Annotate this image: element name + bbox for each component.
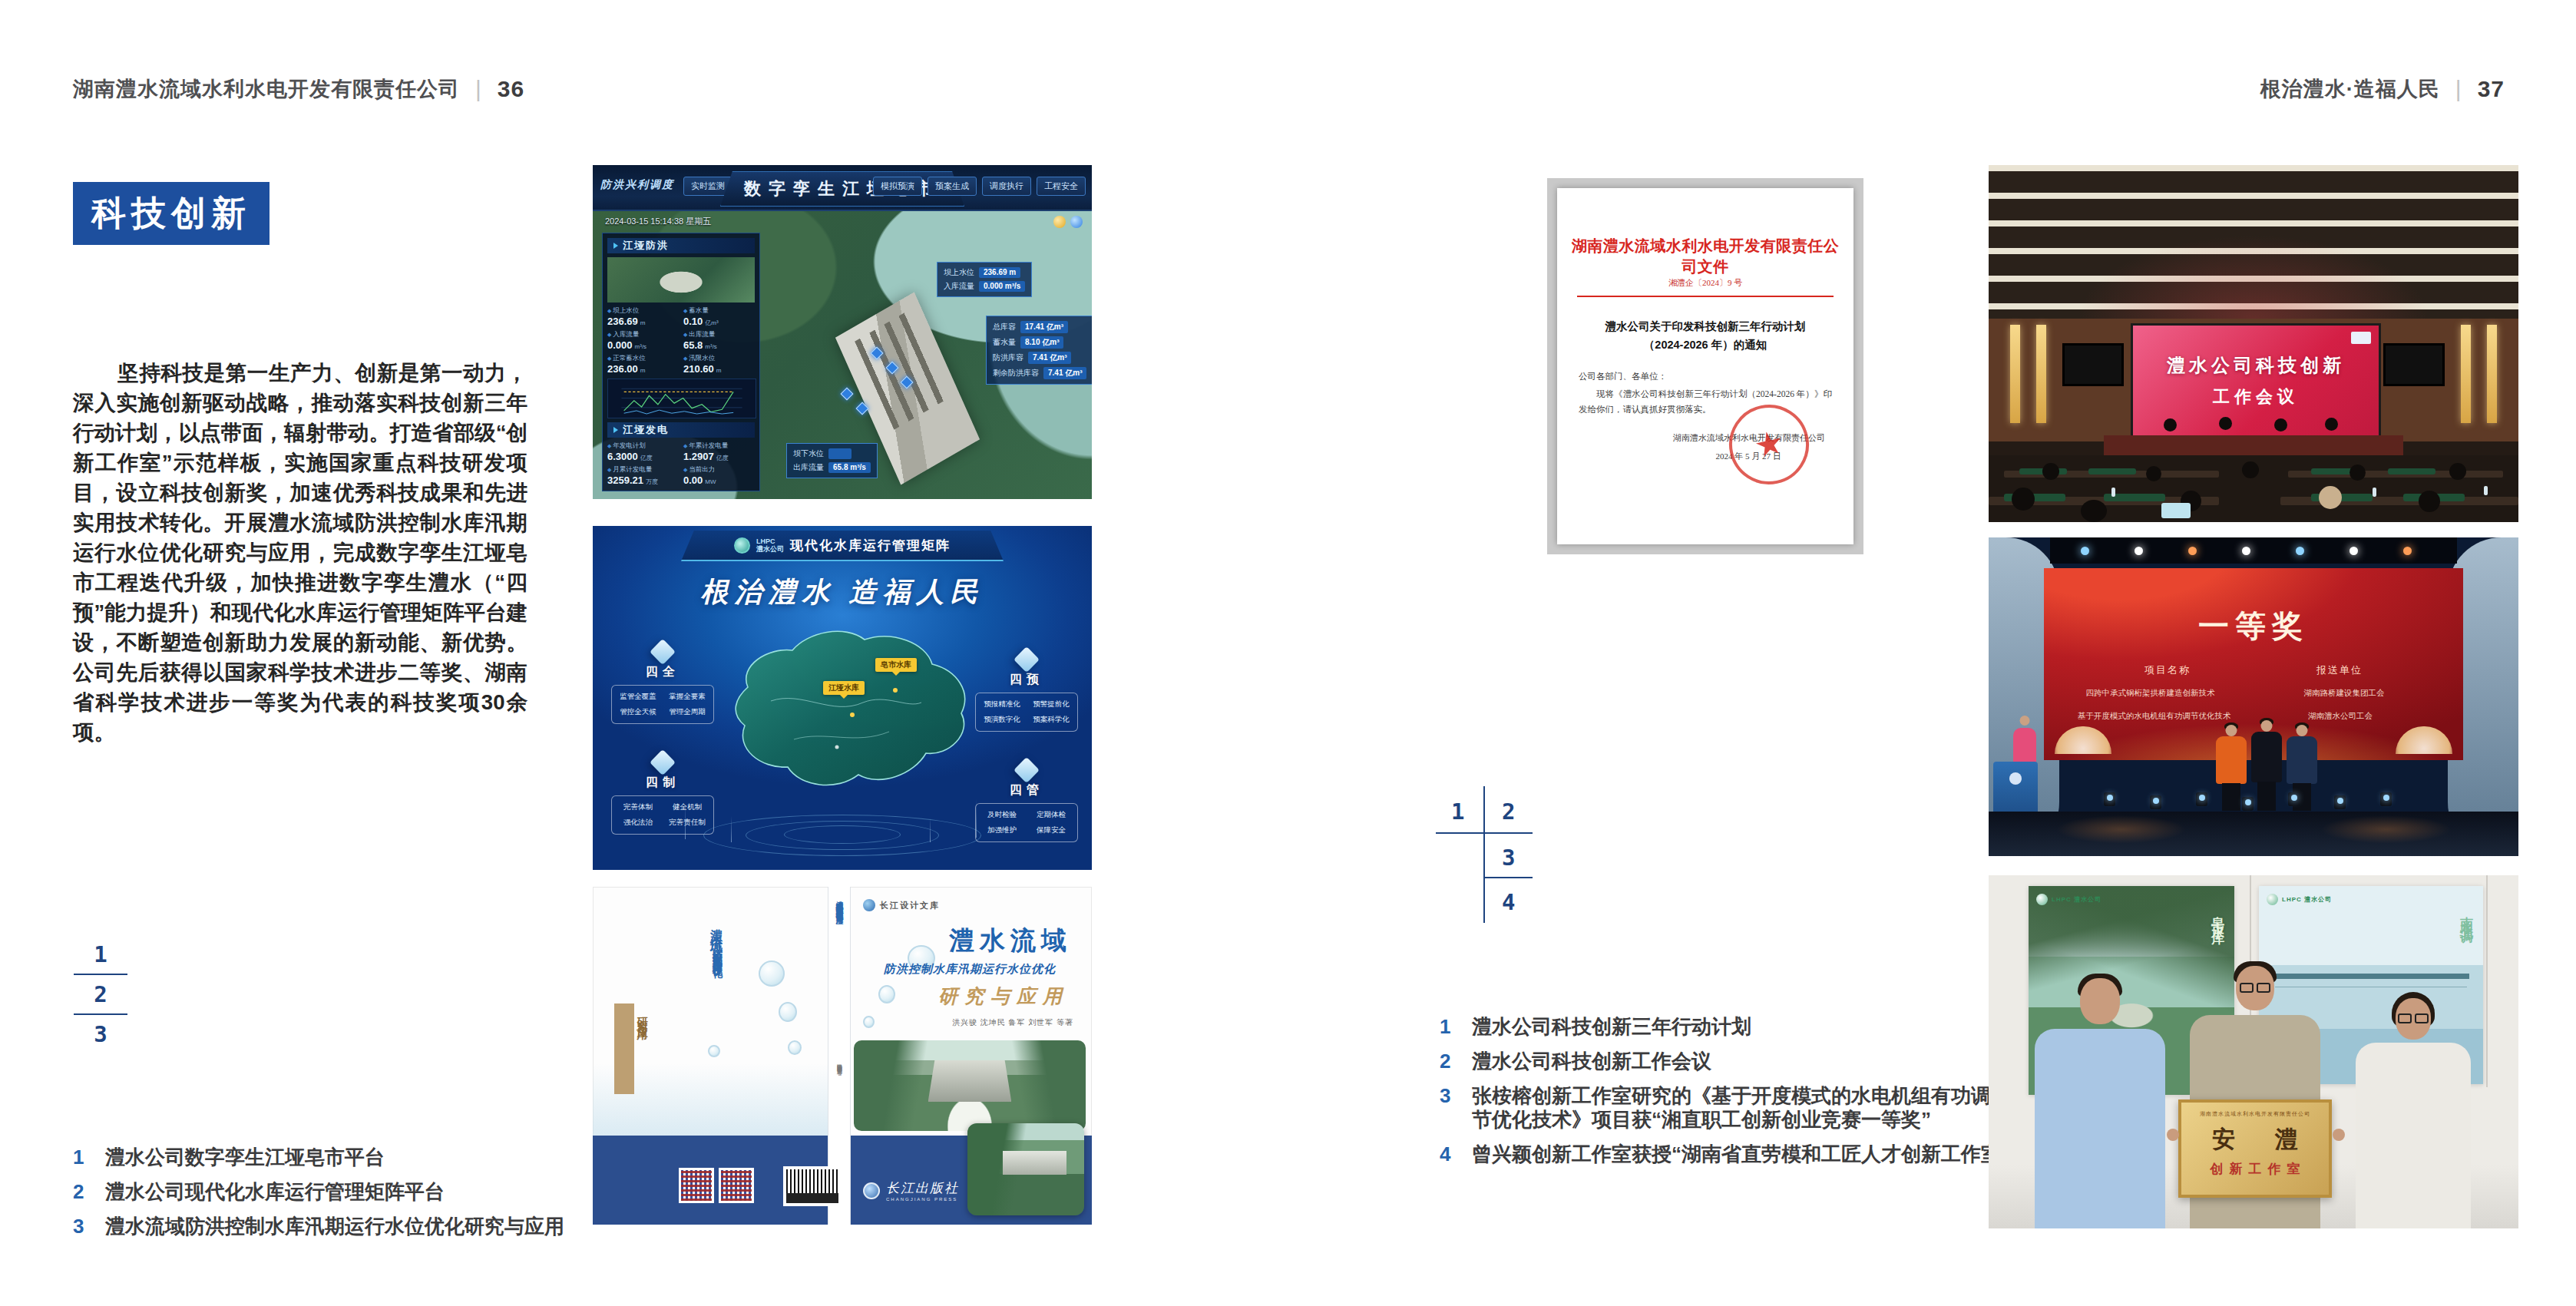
barcode-footer xyxy=(786,1193,838,1203)
figure-number: 1 xyxy=(1451,798,1464,825)
caption-text: 澧水公司数字孪生江垭皂市平台 xyxy=(105,1146,385,1169)
stage-truss xyxy=(2050,537,2457,564)
publisher-names: 长江出版社 CHANGJIANG PRESS xyxy=(886,1179,959,1202)
panel-title: 江垭防洪 xyxy=(623,239,669,253)
unit: 亿度 xyxy=(716,455,729,461)
value: 6.3000 xyxy=(607,451,638,462)
audience-member xyxy=(2242,461,2259,478)
caption-number: 3 xyxy=(73,1215,90,1238)
audience-member xyxy=(2081,500,2107,522)
poster-logo-text: LHPC 澧水公司 xyxy=(2052,895,2101,904)
stat-value: 236.00m xyxy=(607,363,679,375)
cube-icon xyxy=(650,749,676,775)
front-cover-dam-photo xyxy=(854,1040,1086,1131)
audience-member xyxy=(2419,491,2440,512)
amber-light-bar xyxy=(2487,325,2497,423)
wall-display xyxy=(2062,343,2124,386)
callout-value: 7.41 亿m³ xyxy=(1043,367,1086,379)
front-title-sub: 防洪控制水库汛期运行水位优化 xyxy=(854,962,1086,977)
alert-icon xyxy=(1053,216,1066,228)
water-drop-decoration xyxy=(788,1040,802,1055)
front-title-tail: 研究与应用 xyxy=(938,984,1069,1009)
light-beam-decoration xyxy=(976,799,977,838)
caption-item: 1 澧水公司科技创新三年行动计划 xyxy=(1440,1015,2012,1039)
value: 0.00 xyxy=(683,474,703,486)
screen-title-line1: 澧水公司科技创新 xyxy=(2133,353,2379,378)
woman-white-top xyxy=(2356,992,2471,1228)
panelist xyxy=(2219,417,2232,430)
panel-item: 完善体制 xyxy=(615,802,661,812)
panel-item: 预警提前化 xyxy=(1028,699,1074,709)
stat-value: 236.69m xyxy=(607,316,679,327)
water-drop-decoration xyxy=(863,1016,875,1028)
series-globe-icon xyxy=(863,899,875,911)
value: 0.10 xyxy=(683,316,703,327)
spine-publisher: 长江出版社 xyxy=(835,1213,844,1217)
panel-item: 强化法治 xyxy=(615,818,661,828)
plaque-header: 湖南澧水流域水利水电开发有限责任公司 xyxy=(2181,1110,2329,1118)
document-letterhead: 湖南澧水流域水利水电开发有限责任公司文件 xyxy=(1568,236,1843,277)
stat-value: 3259.21万度 xyxy=(607,474,679,486)
audience-member xyxy=(2449,463,2466,480)
stage-light-fixture xyxy=(2288,792,2300,806)
panel-title-bar: 江垭防洪 xyxy=(607,238,755,253)
caption-item: 4 曾兴颖创新工作室获授“湖南省直劳模和工匠人才创新工作室” xyxy=(1440,1142,2012,1166)
panel-item: 管理全周期 xyxy=(664,707,710,717)
stat-cell: 入库流量 0.000m³/s xyxy=(607,330,679,351)
value: 65.8 xyxy=(683,339,703,351)
index-divider xyxy=(1483,786,1485,923)
matrix-panel-siguan: 四管 及时检验 定期体检 加强维护 保障安全 xyxy=(975,761,1078,842)
panel-items: 及时检验 定期体检 加强维护 保障安全 xyxy=(975,803,1078,842)
stat-cell: 坝上水位 236.69m xyxy=(607,306,679,327)
matrix-panel-siyu: 四预 预报精准化 预警提前化 预演数字化 预案科学化 xyxy=(975,650,1078,732)
value: 0.000 xyxy=(607,339,633,351)
publisher-icon xyxy=(863,1182,880,1199)
official-document-photo: 湖南澧水流域水利水电开发有限责任公司文件 湘澧企〔2024〕9 号 澧水公司关于… xyxy=(1547,178,1863,554)
navy-jacket xyxy=(2287,736,2317,784)
caption-text: 张桉榕创新工作室研究的《基于开度模式的水电机组有功调节优化技术》项目获“湘直职工… xyxy=(1472,1084,2009,1132)
caption-number: 2 xyxy=(73,1180,90,1204)
left-data-panel: 江垭防洪 坝上水位 236.69m 蓄水量 0.10亿m³ 入库流量 0.000… xyxy=(602,233,760,491)
series-logo: 长江设计文库 xyxy=(863,899,940,911)
spotlight xyxy=(2403,547,2412,555)
legs xyxy=(2222,783,2240,811)
figure-number: 3 xyxy=(74,1021,127,1047)
stat-label: 汛限水位 xyxy=(683,354,755,363)
unit: 亿m³ xyxy=(705,319,718,326)
callout-value: 0.000 m³/s xyxy=(979,281,1025,292)
title-line1: 澧水公司关于印发科技创新三年行动计划 xyxy=(1572,317,1838,336)
water-drop-decoration xyxy=(779,1002,797,1022)
man-blue-polo xyxy=(2035,974,2165,1228)
nav-tab: 调度执行 xyxy=(982,177,1031,196)
stage-light-fixture xyxy=(2150,795,2161,809)
left-page-number: 36 xyxy=(498,76,524,102)
lhpc-logo-text: LHPC 澧水公司 xyxy=(756,537,784,553)
panel-item: 完善责任制 xyxy=(664,818,710,828)
callout-row: 防洪库容 7.41 亿m³ xyxy=(993,352,1086,364)
value: 1.2907 xyxy=(683,451,714,462)
blue-polo-shirt xyxy=(2035,1029,2165,1228)
publisher-logo: 长江出版社 CHANGJIANG PRESS xyxy=(863,1179,959,1202)
matrix-panel-siquan: 四全 监管全覆盖 掌握全要素 管控全天候 管理全周期 xyxy=(611,643,714,724)
callout-value: 8.10 亿m³ xyxy=(1020,336,1063,349)
callout-value: 236.69 m xyxy=(979,267,1020,278)
stat-cell: 正常蓄水位 236.00m xyxy=(607,354,679,375)
spine-title: 澧水流域防洪控制水库汛期运行水位优化研究与应用 xyxy=(835,894,845,912)
project-name: 四跨中承式钢桁架拱桥建造创新技术 xyxy=(2086,688,2215,699)
desk-mat xyxy=(2088,468,2136,474)
stage-light-fixture xyxy=(2196,792,2207,806)
matrix-title: 现代化水库运行管理矩阵 xyxy=(790,537,951,554)
white-top xyxy=(2356,1043,2471,1228)
plaque-title: 安 澧 xyxy=(2181,1124,2329,1156)
lhpc-logo-icon xyxy=(734,537,750,554)
wall-seam xyxy=(2486,875,2488,1087)
generation-stats-grid: 年发电计划 6.3000亿度 年累计发电量 1.2907亿度 月累计发电量 32… xyxy=(607,441,755,486)
value: 236.00 xyxy=(607,363,638,375)
figure-number: 2 xyxy=(74,981,127,1007)
document-number: 湘澧企〔2024〕9 号 xyxy=(1557,277,1853,289)
amber-light-bar xyxy=(2036,325,2046,423)
legs xyxy=(2257,782,2276,811)
stat-value: 0.10亿m³ xyxy=(683,316,755,327)
matrix-topbar: LHPC 澧水公司 现代化水库运行管理矩阵 xyxy=(681,531,1004,561)
tissue-box xyxy=(2161,503,2191,518)
matrix-panel-sizhi: 四制 完善体制 健全机制 强化法治 完善责任制 xyxy=(611,753,714,835)
callout-row: 剩余防洪库容 7.41 亿m³ xyxy=(993,367,1086,379)
back-title-sub: 防洪控制水库汛期运行水位优化 xyxy=(708,941,724,962)
seal-star-icon xyxy=(1754,429,1784,460)
water-bottle xyxy=(2484,486,2488,495)
panel-item: 预演数字化 xyxy=(979,715,1025,725)
glasses-icon xyxy=(2240,983,2270,993)
panel-title-bar: 江垭发电 xyxy=(607,422,755,438)
water-drop-decoration xyxy=(759,960,785,987)
spine-authors: 洪兴骏 沈坤民 鲁军 刘世军 等著 xyxy=(835,1060,843,1066)
unit: MW xyxy=(705,478,716,485)
panel-title: 江垭发电 xyxy=(623,423,669,437)
isbn-barcode xyxy=(783,1166,842,1206)
stat-cell: 出库流量 65.8m³/s xyxy=(683,330,755,351)
stage-dome-decoration xyxy=(2055,726,2111,754)
callout-label: 蓄水量 xyxy=(993,337,1016,348)
head xyxy=(2297,725,2308,736)
org-name: 湖南澧水公司工会 xyxy=(2308,711,2373,722)
stat-cell: 年发电计划 6.3000亿度 xyxy=(607,441,679,462)
header-separator: | xyxy=(475,76,482,102)
callout-row: 出库流量 65.8 m³/s xyxy=(793,462,871,473)
publisher-name: 长江出版社 xyxy=(886,1179,959,1197)
value: 236.69 xyxy=(607,316,638,327)
nav-tab: 预案生成 xyxy=(928,177,977,196)
caption-text: 澧水公司科技创新工作会议 xyxy=(1472,1050,1711,1073)
spotlight xyxy=(2081,547,2089,555)
audience-member xyxy=(2146,466,2161,481)
callout-label: 剩余防洪库容 xyxy=(993,368,1039,379)
caption-item: 2 澧水公司现代化水库运行管理矩阵平台 xyxy=(73,1180,564,1204)
matrix-slogan: 根治澧水 造福人民 xyxy=(593,574,1092,611)
back-cover-title: 澧水流域 防洪控制水库汛期运行水位优化 xyxy=(708,919,724,1096)
series-name: 长江设计文库 xyxy=(880,900,940,911)
project-name: 基于开度模式的水电机组有功调节优化技术 xyxy=(2078,711,2231,722)
nav-right-group: 模拟预演 预案生成 调度执行 工程安全 xyxy=(873,177,1086,196)
amber-light-bar xyxy=(2010,325,2020,423)
water-drop-decoration xyxy=(708,1045,720,1057)
front-cover-powerstation-photo xyxy=(967,1123,1084,1215)
panel-item: 预报精准化 xyxy=(979,699,1025,709)
callout-label: 入库流量 xyxy=(944,281,974,292)
reservoir-label: 江垭水库 xyxy=(823,681,865,695)
audience-member xyxy=(2012,488,2035,511)
document-body: 现将《澧水公司科技创新三年行动计划（2024-2026 年）》印发给你们，请认真… xyxy=(1579,386,1832,417)
stage-dome-decoration xyxy=(2396,726,2452,754)
dark-suit xyxy=(2251,732,2282,782)
water-bottle xyxy=(2373,488,2376,497)
body-paragraph: 坚持科技是第一生产力、创新是第一动力，深入实施创新驱动战略，推动落实科技创新三年… xyxy=(73,358,527,747)
unit: m xyxy=(716,367,722,374)
stat-value: 0.000m³/s xyxy=(607,339,679,351)
poster-logo-text: LHPC 澧水公司 xyxy=(2282,895,2332,904)
panel-item: 管控全天候 xyxy=(615,707,661,717)
dashboard-brand: 防洪兴利调度 xyxy=(600,178,674,192)
slogan-text: 根治澧水·造福人民 xyxy=(2260,75,2440,103)
lhpc-logo-icon xyxy=(2267,894,2278,905)
head xyxy=(2226,725,2237,736)
panel-items: 预报精准化 预警提前化 预演数字化 预案科学化 xyxy=(975,693,1078,732)
document-salutation: 公司各部门、各单位： xyxy=(1579,371,1667,382)
downstream-callout: 坝下水位 出库流量 65.8 m³/s xyxy=(786,443,878,478)
stat-label: 月累计发电量 xyxy=(607,465,679,474)
cube-icon xyxy=(650,639,676,665)
title-line2: （2024-2026 年）的通知 xyxy=(1572,336,1838,354)
column-header: 项目名称 xyxy=(2144,663,2191,677)
section-title-badge: 科技创新 xyxy=(73,182,270,245)
unit: m xyxy=(640,319,646,326)
dashboard-corner-icons xyxy=(1053,216,1083,228)
callout-row: 总库容 17.41 亿m³ xyxy=(993,321,1086,333)
caption-item: 1 澧水公司数字孪生江垭皂市平台 xyxy=(73,1146,564,1169)
qr-code xyxy=(679,1168,714,1203)
caption-text: 澧水流域防洪控制水库汛期运行水位优化研究与应用 xyxy=(105,1215,564,1238)
panel-item: 掌握全要素 xyxy=(664,692,710,702)
audience-member xyxy=(2042,463,2059,480)
screen-logo xyxy=(2351,332,2371,344)
plaque-subtitle: 创新工作室 xyxy=(2181,1160,2329,1178)
callout-label: 总库容 xyxy=(993,322,1016,332)
panel-item: 监管全覆盖 xyxy=(615,692,661,702)
sail-icon xyxy=(613,427,618,433)
panelist xyxy=(2274,418,2287,431)
left-captions: 1 澧水公司数字孪生江垭皂市平台 2 澧水公司现代化水库运行管理矩阵平台 3 澧… xyxy=(73,1146,564,1238)
panel-title: 四预 xyxy=(975,672,1078,688)
publisher-name-en: CHANGJIANG PRESS xyxy=(886,1197,959,1202)
spotlight xyxy=(2135,547,2143,555)
orange-jacket xyxy=(2216,736,2247,784)
right-captions: 1 澧水公司科技创新三年行动计划 2 澧水公司科技创新工作会议 3 张桉榕创新工… xyxy=(1440,1015,2012,1166)
callout-label: 坝下水位 xyxy=(793,448,824,459)
nav-tab: 工程安全 xyxy=(1037,177,1086,196)
callout-row: 坝上水位 236.69 m xyxy=(944,267,1025,278)
face xyxy=(2080,978,2120,1024)
upstream-callout: 坝上水位 236.69 m 入库流量 0.000 m³/s xyxy=(937,262,1032,297)
stat-label: 年累计发电量 xyxy=(683,441,755,451)
caption-text: 曾兴颖创新工作室获授“湖南省直劳模和工匠人才创新工作室” xyxy=(1472,1142,2011,1166)
audience-member xyxy=(2349,465,2366,481)
host-head xyxy=(2020,716,2030,726)
stat-cell: 当前出力 0.00MW xyxy=(683,465,755,486)
capacity-callout: 总库容 17.41 亿m³ 蓄水量 8.10 亿m³ 防洪库容 7.41 亿m³… xyxy=(986,316,1092,385)
back-title-tail: 研究与应用 xyxy=(636,1008,650,1023)
value: 210.60 xyxy=(683,363,714,375)
org-name: 湖南路桥建设集团工会 xyxy=(2304,688,2385,699)
flood-stats-grid: 坝上水位 236.69m 蓄水量 0.10亿m³ 入库流量 0.000m³/s … xyxy=(607,306,755,375)
caption-text: 澧水公司现代化水库运行管理矩阵平台 xyxy=(105,1180,445,1204)
panelist xyxy=(2164,418,2177,431)
callout-row: 蓄水量 8.10 亿m³ xyxy=(993,336,1086,349)
panel-items: 监管全覆盖 掌握全要素 管控全天候 管理全周期 xyxy=(611,685,714,724)
workshop-group-photo: LHPC 澧水公司 皂市水库 LHPC 澧水公司 南水北调 xyxy=(1989,875,2518,1228)
head-table xyxy=(2104,435,2403,455)
screen-title-line2: 工作会议 xyxy=(2133,385,2379,408)
stage-light-fixture xyxy=(2380,792,2392,806)
unit: m³/s xyxy=(635,343,647,350)
index-divider xyxy=(74,1013,127,1015)
tan-block xyxy=(614,1003,634,1094)
right-page-header: 根治澧水·造福人民 | 37 xyxy=(2260,75,2505,103)
cube-icon xyxy=(1014,646,1040,673)
dashboard-datetime: 2024-03-15 15:14:38 星期五 xyxy=(605,216,711,227)
stat-value: 65.8m³/s xyxy=(683,339,755,351)
light-beam-decoration xyxy=(731,816,732,842)
layers-icon xyxy=(1070,216,1083,228)
audience-member xyxy=(2319,486,2342,509)
nav-tab: 模拟预演 xyxy=(873,177,922,196)
poster-logo: LHPC 澧水公司 xyxy=(2267,894,2332,905)
qr-pattern xyxy=(721,1170,752,1201)
poster-caption: 南水北调 xyxy=(2458,906,2475,924)
digital-twin-dashboard-photo: 防洪兴利调度 实时监测 洪水预报 防洪预警 数字孪生江垭皂市 模拟预演 预案生成… xyxy=(593,165,1092,499)
figure-number: 1 xyxy=(74,941,127,967)
red-divider-line xyxy=(1577,296,1834,297)
document-page: 湖南澧水流域水利水电开发有限责任公司文件 湘澧企〔2024〕9 号 澧水公司关于… xyxy=(1557,188,1853,544)
stat-label: 当前出力 xyxy=(683,465,755,474)
back-title-main: 澧水流域 xyxy=(708,919,724,934)
caption-number: 1 xyxy=(73,1146,90,1169)
right-page-number: 37 xyxy=(2478,76,2505,102)
figure-number: 2 xyxy=(1502,798,1515,825)
poster-caption: 皂市水库 xyxy=(2209,906,2227,924)
gate-marker-icon xyxy=(841,387,854,400)
callout-value: 17.41 亿m³ xyxy=(1020,321,1068,333)
index-divider xyxy=(74,974,127,975)
figure-number: 3 xyxy=(1502,845,1515,871)
spotlight xyxy=(2349,547,2358,555)
stat-cell: 年累计发电量 1.2907亿度 xyxy=(683,441,755,462)
award-title: 一等奖 xyxy=(2044,605,2463,647)
reflective-stage-floor xyxy=(1989,812,2518,856)
callout-label: 坝上水位 xyxy=(944,267,974,278)
amber-light-bar xyxy=(2461,325,2471,423)
caption-number: 1 xyxy=(1440,1015,1457,1039)
caption-item: 2 澧水公司科技创新工作会议 xyxy=(1440,1050,2012,1073)
hand xyxy=(2167,1129,2179,1141)
ceiling-light-strips xyxy=(1989,165,2518,319)
document-title: 澧水公司关于印发科技创新三年行动计划 （2024-2026 年）的通知 xyxy=(1572,317,1838,354)
panel-item: 及时检验 xyxy=(979,810,1025,820)
logo-line1: LHPC xyxy=(756,537,775,545)
stat-label: 正常蓄水位 xyxy=(607,354,679,363)
panel-title: 四制 xyxy=(611,775,714,791)
panel-item: 加强维护 xyxy=(979,825,1025,835)
left-figure-index: 1 2 3 xyxy=(74,941,127,1047)
stat-label: 入库流量 xyxy=(607,330,679,339)
wall-display xyxy=(2383,343,2445,386)
panel-item: 健全机制 xyxy=(664,802,710,812)
water-drop-decoration xyxy=(878,985,895,1003)
stat-label: 出库流量 xyxy=(683,330,755,339)
water-level-trend-chart xyxy=(607,379,756,419)
unit: 亿度 xyxy=(640,455,653,461)
water-bottle xyxy=(2111,488,2115,497)
stage-light-fixture xyxy=(2334,795,2346,809)
caption-text: 澧水公司科技创新三年行动计划 xyxy=(1472,1015,1751,1039)
callout-value: 65.8 m³/s xyxy=(828,462,871,473)
callout-value: 7.41 亿m³ xyxy=(1028,352,1071,364)
glasses-icon xyxy=(2398,1013,2429,1023)
stat-cell: 汛限水位 210.60m xyxy=(683,354,755,375)
meeting-photo: 澧水公司科技创新 工作会议 xyxy=(1989,165,2518,522)
stat-cell: 月累计发电量 3259.21万度 xyxy=(607,465,679,486)
callout-row: 坝下水位 xyxy=(793,448,871,459)
stage-light-fixture xyxy=(2242,797,2254,811)
magazine-spread: 湖南澧水流域水利水电开发有限责任公司 | 36 根治澧水·造福人民 | 37 科… xyxy=(0,0,2576,1306)
innovation-workshop-plaque: 湖南澧水流域水利水电开发有限责任公司 安 澧 创新工作室 xyxy=(2178,1099,2332,1198)
stat-value: 210.60m xyxy=(683,363,755,375)
front-title-main: 澧水流域 xyxy=(949,924,1072,958)
stat-value: 6.3000亿度 xyxy=(607,451,679,462)
light-beam-decoration xyxy=(930,818,931,842)
panelist xyxy=(2325,418,2338,431)
stat-value: 0.00MW xyxy=(683,474,755,486)
figure-number: 4 xyxy=(1502,889,1515,915)
caption-item: 3 澧水流域防洪控制水库汛期运行水位优化研究与应用 xyxy=(73,1215,564,1238)
presenter-suit xyxy=(2251,720,2282,811)
index-divider xyxy=(1483,877,1533,878)
stat-label: 蓄水量 xyxy=(683,306,755,316)
dam-thumbnail xyxy=(607,257,755,303)
index-divider xyxy=(1436,832,1533,834)
callout-row: 入库流量 0.000 m³/s xyxy=(944,281,1025,292)
dashboard-topbar: 防洪兴利调度 实时监测 洪水预报 防洪预警 数字孪生江垭皂市 模拟预演 预案生成… xyxy=(593,165,1092,211)
callout-label: 防洪库容 xyxy=(993,352,1023,363)
callout-value xyxy=(828,448,852,459)
panel-item: 保障安全 xyxy=(1028,825,1074,835)
company-name: 湖南澧水流域水利水电开发有限责任公司 xyxy=(73,75,460,103)
head xyxy=(2261,720,2273,732)
caption-number: 4 xyxy=(1440,1142,1457,1166)
unit: m xyxy=(640,367,646,374)
caption-item: 3 张桉榕创新工作室研究的《基于开度模式的水电机组有功调节优化技术》项目获“湘直… xyxy=(1440,1084,2012,1132)
right-figure-index: 1 2 3 4 xyxy=(1434,782,1536,929)
reservoir-label: 皂市水库 xyxy=(875,658,917,672)
spotlight xyxy=(2296,547,2304,555)
panel-items: 完善体制 健全机制 强化法治 完善责任制 xyxy=(611,795,714,835)
panel-item: 定期体检 xyxy=(1028,810,1074,820)
caption-number: 2 xyxy=(1440,1050,1457,1073)
stat-cell: 蓄水量 0.10亿m³ xyxy=(683,306,755,327)
